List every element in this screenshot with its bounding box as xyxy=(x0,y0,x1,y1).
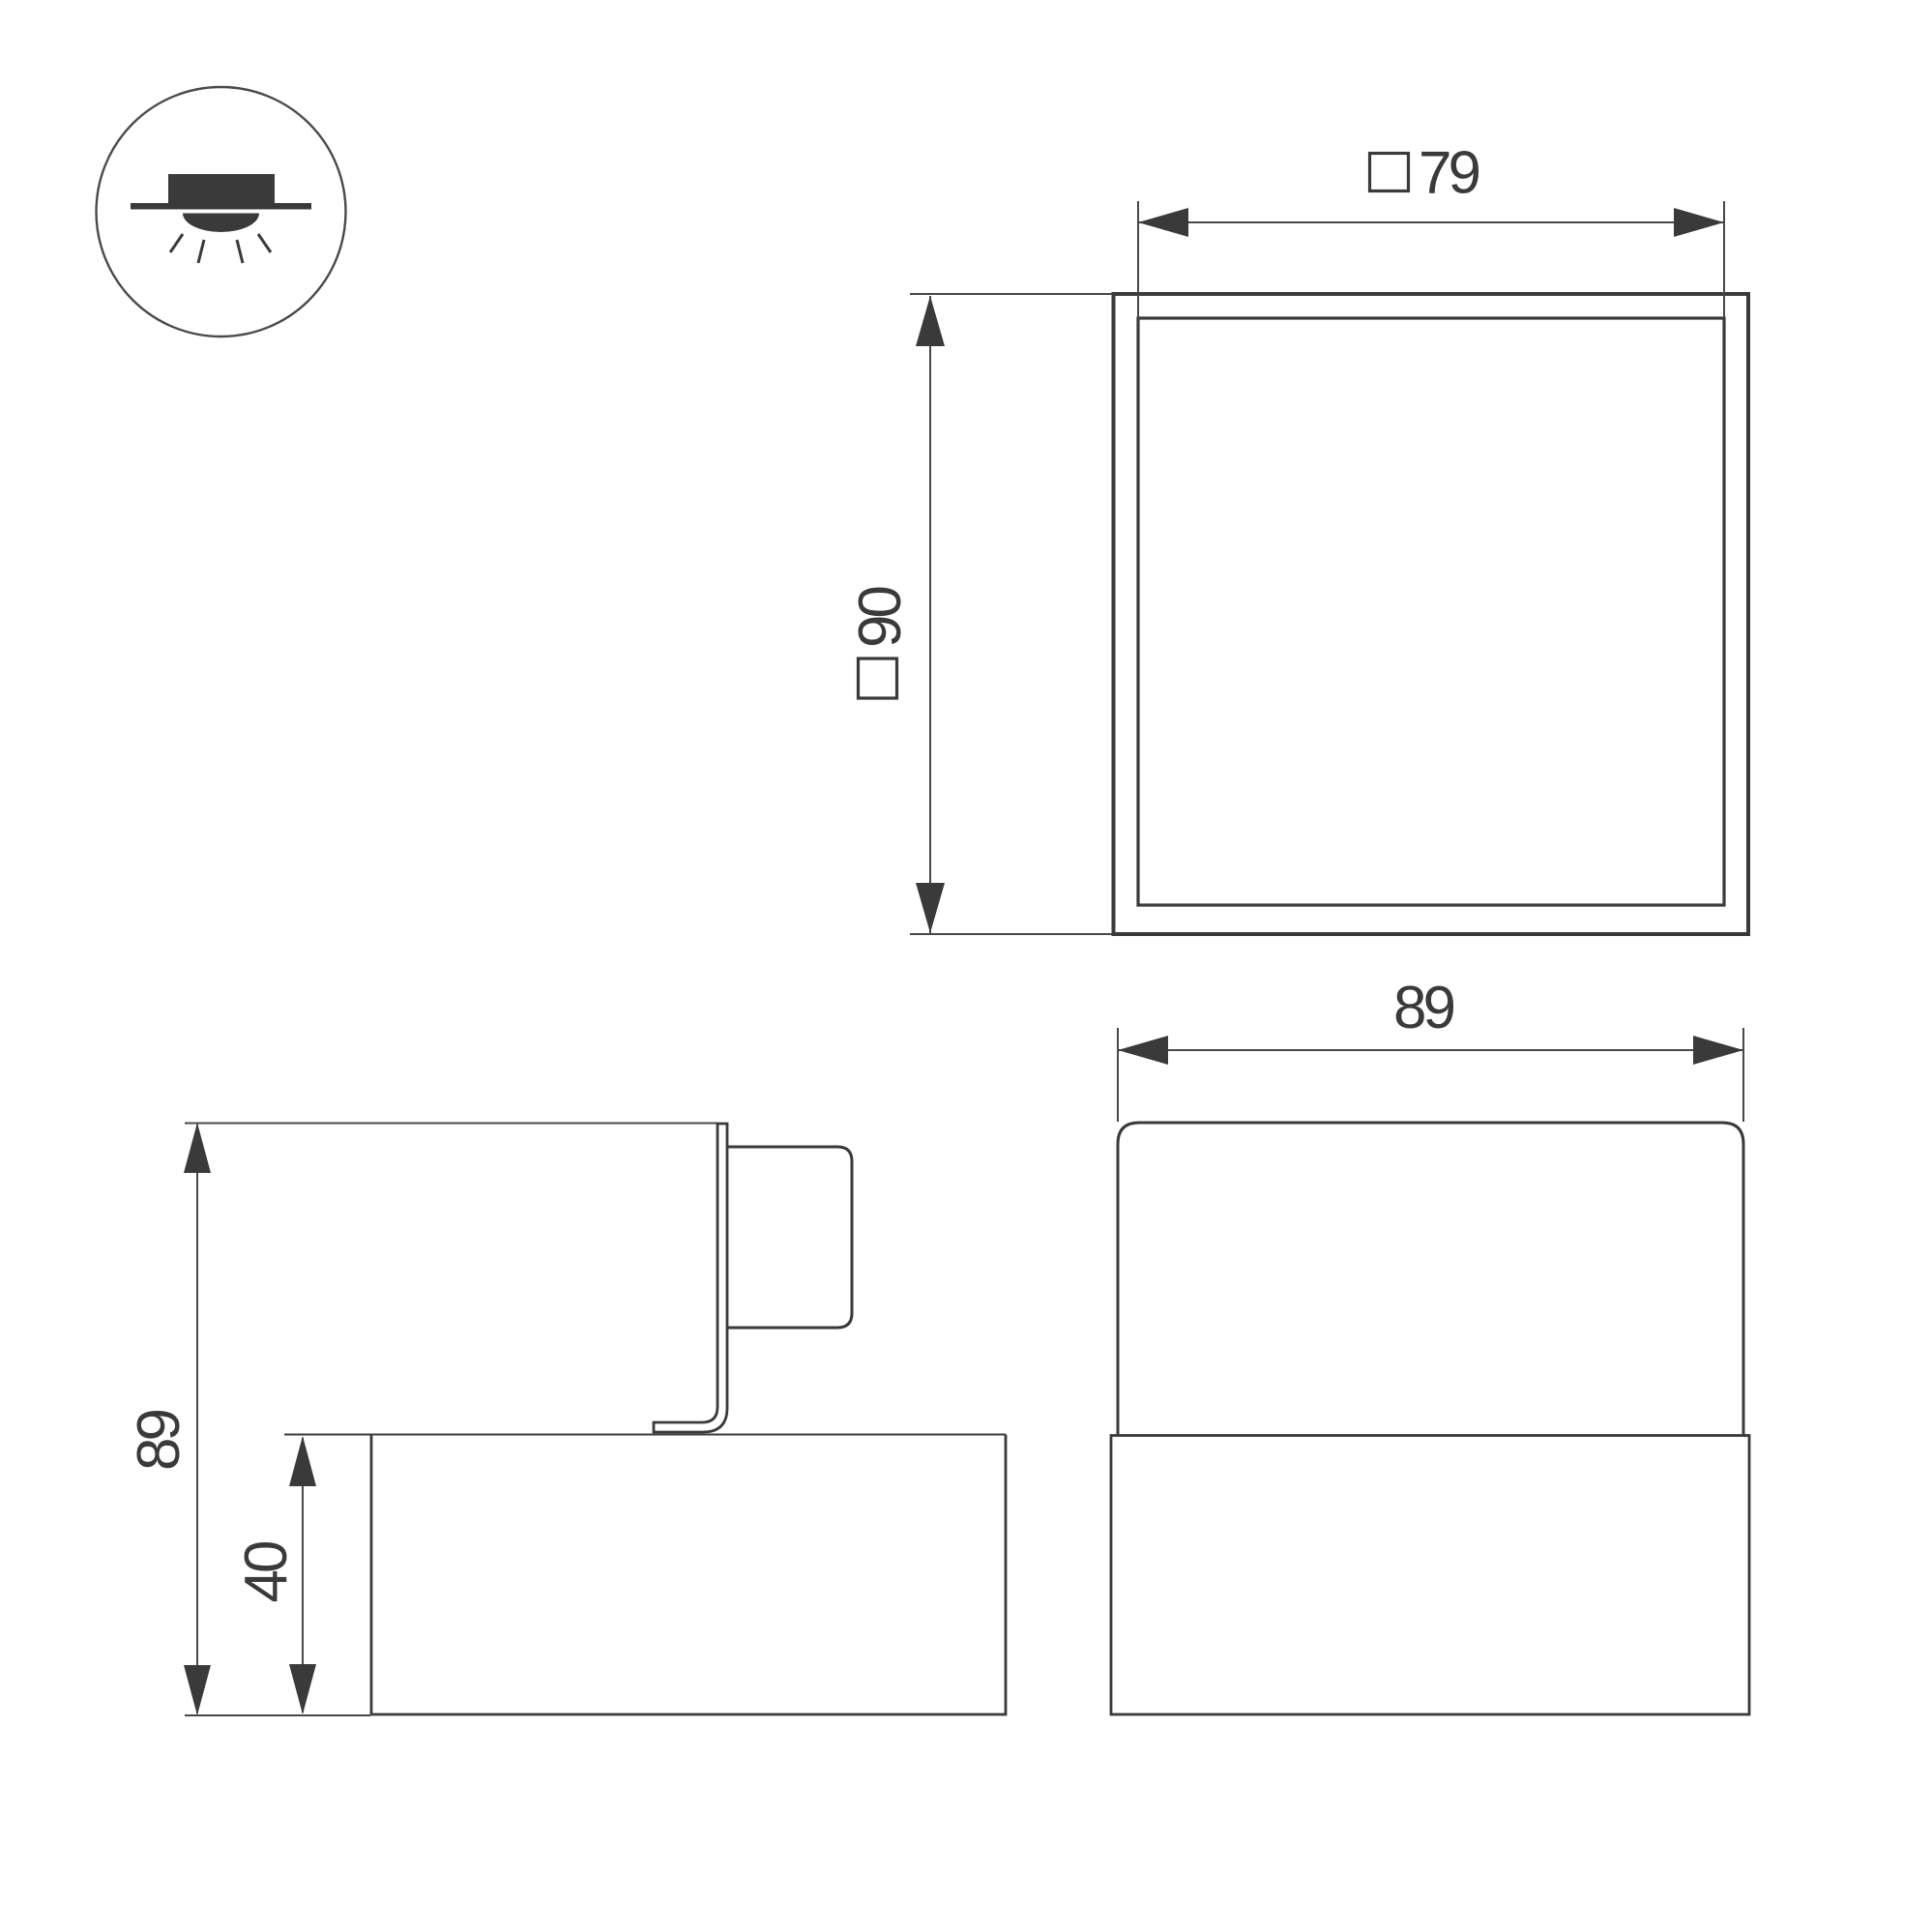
svg-text:40: 40 xyxy=(233,1541,300,1602)
svg-text:90: 90 xyxy=(847,587,914,648)
svg-text:79: 79 xyxy=(1419,140,1478,207)
svg-text:89: 89 xyxy=(126,1411,192,1471)
svg-text:89: 89 xyxy=(1393,975,1453,1041)
